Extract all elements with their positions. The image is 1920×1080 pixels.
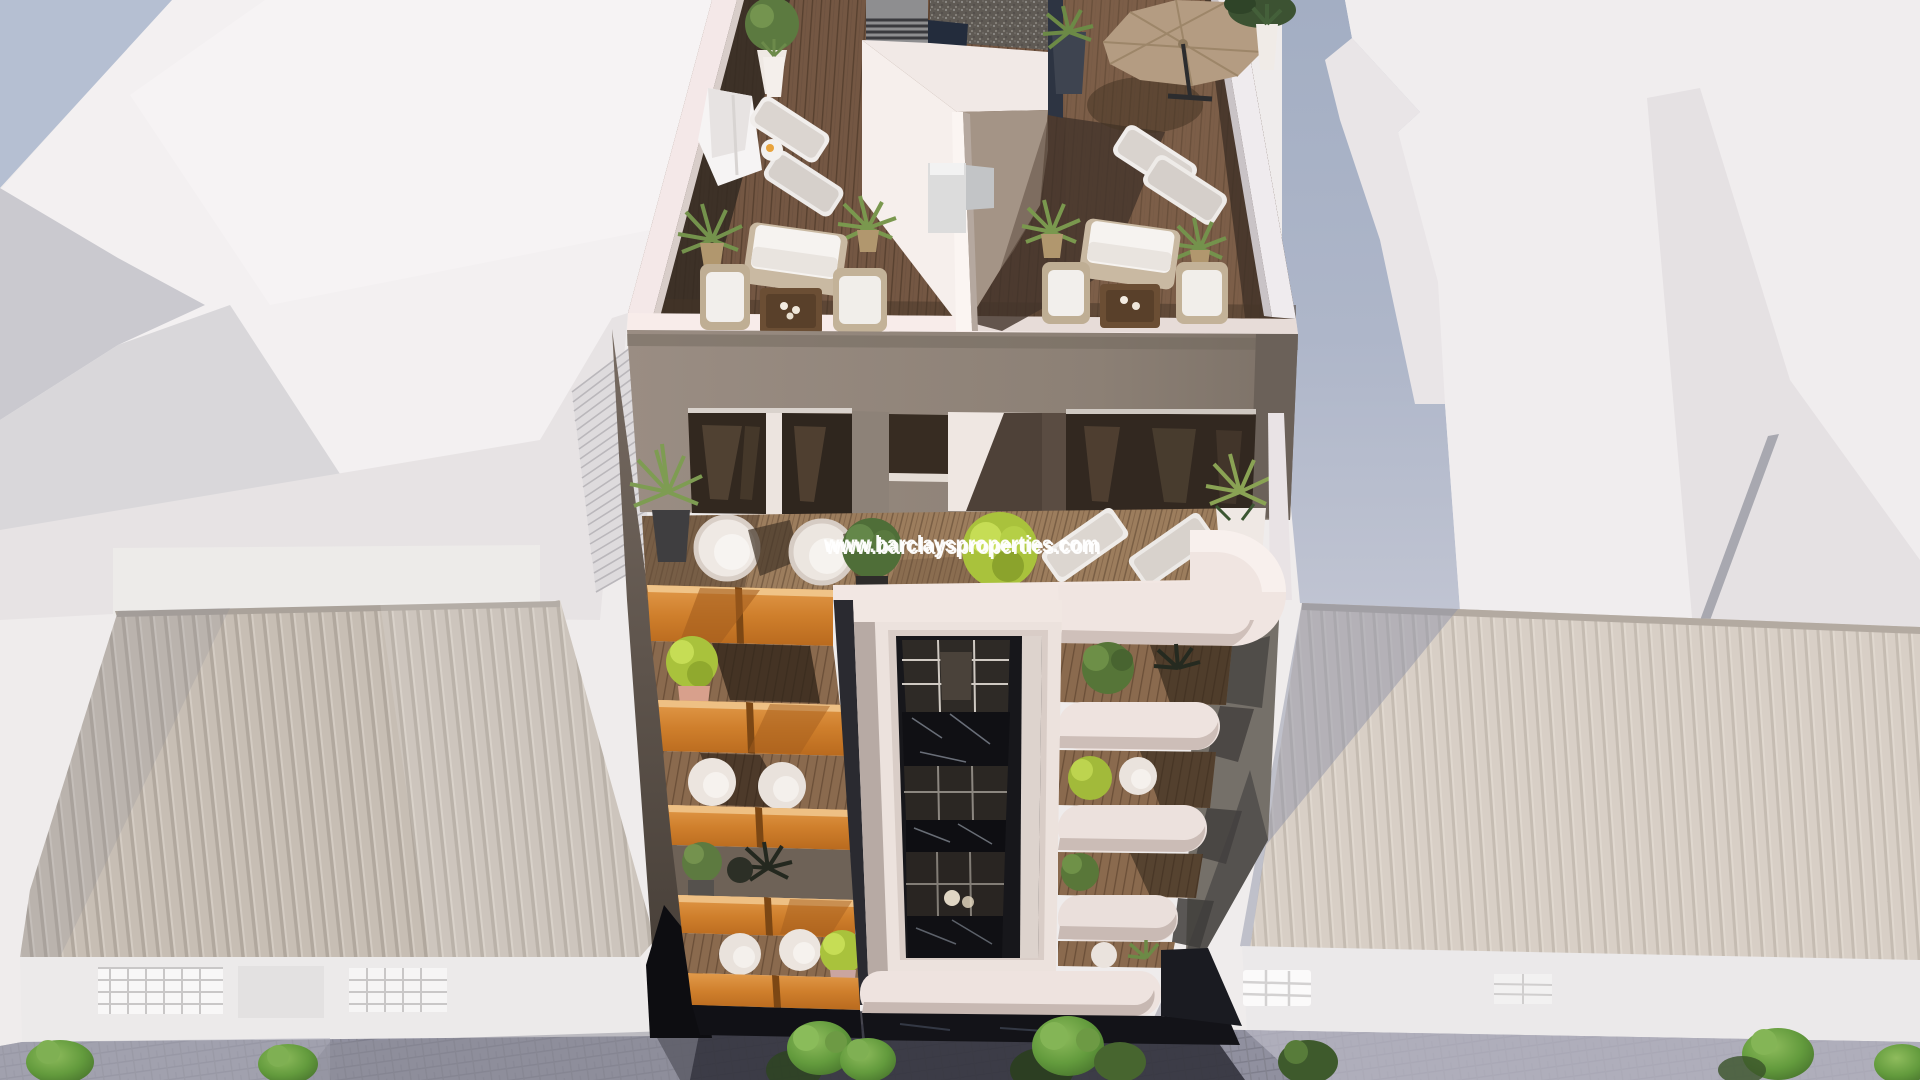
svg-text:www.barclaysproperties.com: www.barclaysproperties.com [823,531,1099,557]
